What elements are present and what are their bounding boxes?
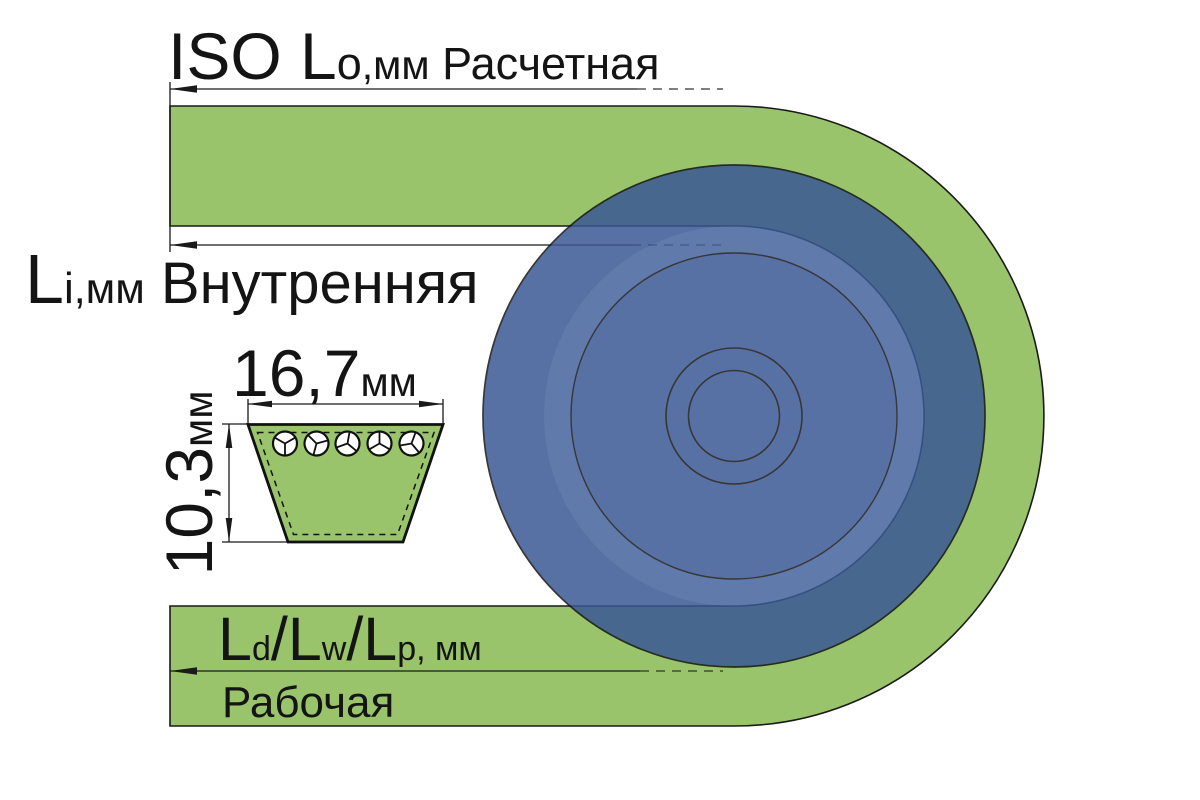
section-height-value: 10,3 — [152, 447, 226, 575]
label-pitch-sub3: p — [397, 630, 416, 668]
label-outer-subscript: o — [337, 38, 362, 89]
pulley-web-circle — [571, 253, 897, 579]
label-inner-subscript: i — [64, 264, 74, 313]
label-inner-main: L — [25, 240, 64, 318]
label-pitch-l1: L — [218, 605, 252, 673]
label-inner-description: Внутренняя — [145, 251, 479, 316]
label-working-length: Рабочая — [222, 678, 394, 727]
pulley — [483, 165, 985, 667]
label-pitch-l3: L — [363, 605, 397, 673]
section-height-unit: мм — [175, 391, 221, 447]
cord-circle — [273, 432, 297, 456]
section-width-value: 16,7 — [232, 336, 360, 410]
label-outer-description: Расчетная — [430, 38, 660, 89]
label-pitch-slash1: / — [271, 605, 288, 673]
label-pitch-slash2: / — [346, 605, 363, 673]
label-pitch-sub1: d — [252, 630, 271, 668]
diagram-canvas: ISO Lo,мм Расчетная Li,мм Внутренняя Ld/… — [0, 0, 1200, 800]
label-pitch-l2: L — [288, 605, 322, 673]
cord-circle — [368, 432, 392, 456]
label-inner-unit: ,мм — [74, 265, 145, 313]
section-width-unit: мм — [360, 359, 416, 405]
label-outer-unit: ,мм — [362, 42, 430, 88]
belt-length-diagram: ISO Lo,мм Расчетная Li,мм Внутренняя Ld/… — [0, 0, 1200, 800]
label-pitch-sub2: w — [321, 630, 347, 668]
label-pitch-unit: , мм — [416, 630, 482, 668]
label-outer-main: ISO L — [168, 19, 337, 93]
